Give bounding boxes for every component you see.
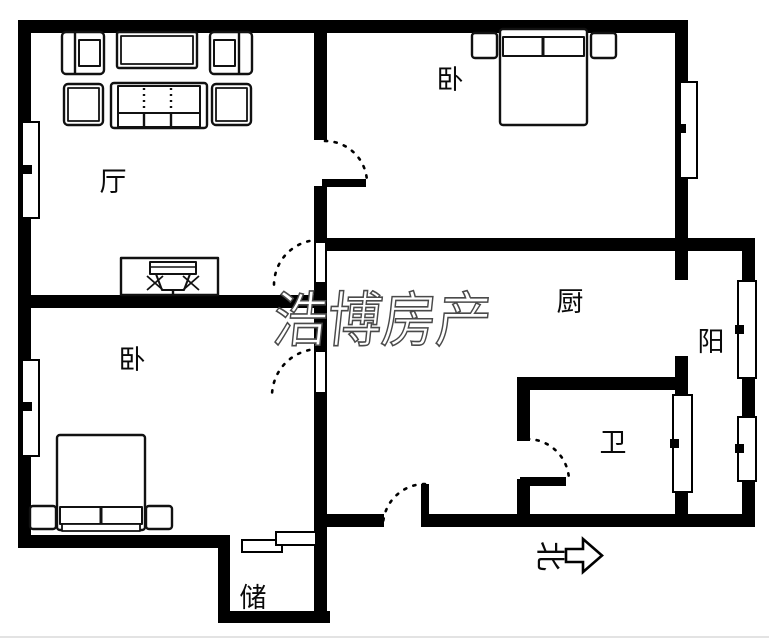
room-label-bedroom-bottom: 卧 <box>119 345 146 376</box>
room-label-kitchen: 厨 <box>557 287 584 318</box>
window-tick <box>24 403 31 410</box>
wall-hall-lower <box>314 393 327 623</box>
tv-cabinet <box>121 258 218 295</box>
room-label-living: 厅 <box>100 167 127 198</box>
bed-bottom-base <box>62 524 140 531</box>
armchair-right-seat <box>214 40 235 66</box>
floor-plan-canvas: 厅 卧 卧 厨 阳 卫 储 北 浩博房产 <box>0 0 769 640</box>
wall-left <box>18 20 31 547</box>
door-leaf-entry <box>421 484 429 527</box>
nightstand-top-right <box>591 33 616 58</box>
wall-living-bedroom-mid <box>314 186 327 242</box>
nightstand-bottom-right <box>146 506 172 529</box>
wall-storage-west <box>218 541 230 623</box>
nightstand-bottom-left <box>30 506 56 529</box>
tv-screen <box>150 262 196 274</box>
wall-balcony-partition-upper <box>675 356 688 397</box>
sofa-seat <box>118 113 200 127</box>
wall-bedroom-bottom <box>18 535 230 548</box>
armchair-left-seat <box>79 40 100 66</box>
coffee-table-inner <box>121 36 193 64</box>
wall-living-bedroom-upper <box>314 20 327 140</box>
side-table-left-inner <box>68 88 99 121</box>
nightstand-top-left <box>472 33 497 58</box>
wall-balcony-partition-lower <box>675 490 688 516</box>
floor-plan: 厅 卧 卧 厨 阳 卫 储 北 浩博房产 <box>0 0 769 640</box>
window-storage-top-right <box>276 532 316 545</box>
wall-bathroom-top <box>517 377 687 390</box>
window-tick <box>671 440 678 447</box>
door-leaf-bedroom-bottom <box>315 351 326 393</box>
wall-bottom-left-segment <box>318 514 384 527</box>
sofa-back <box>118 86 200 113</box>
wall-bathroom-west-upper <box>517 377 530 441</box>
door-leaf-bathroom <box>520 477 566 486</box>
room-label-bedroom-top: 卧 <box>437 65 464 96</box>
wall-storage-bottom <box>218 611 330 623</box>
window-tick <box>678 125 685 132</box>
wall-bottom-right-segment <box>425 514 755 527</box>
wall-middle-horizontal <box>317 238 755 251</box>
bottom-edge-artifact <box>0 636 769 638</box>
room-label-bathroom: 卫 <box>600 428 627 459</box>
room-label-storage: 储 <box>240 583 267 614</box>
watermark-text: 浩博房产 <box>269 286 494 356</box>
room-label-balcony: 阳 <box>698 327 725 358</box>
door-leaf-living-hall <box>315 242 326 283</box>
side-table-right-inner <box>216 88 247 121</box>
window-tick <box>736 326 743 333</box>
window-tick <box>24 166 31 173</box>
door-leaf-bedroom-top <box>322 179 366 187</box>
window-tick <box>736 445 743 452</box>
north-label: 北 <box>532 541 567 571</box>
